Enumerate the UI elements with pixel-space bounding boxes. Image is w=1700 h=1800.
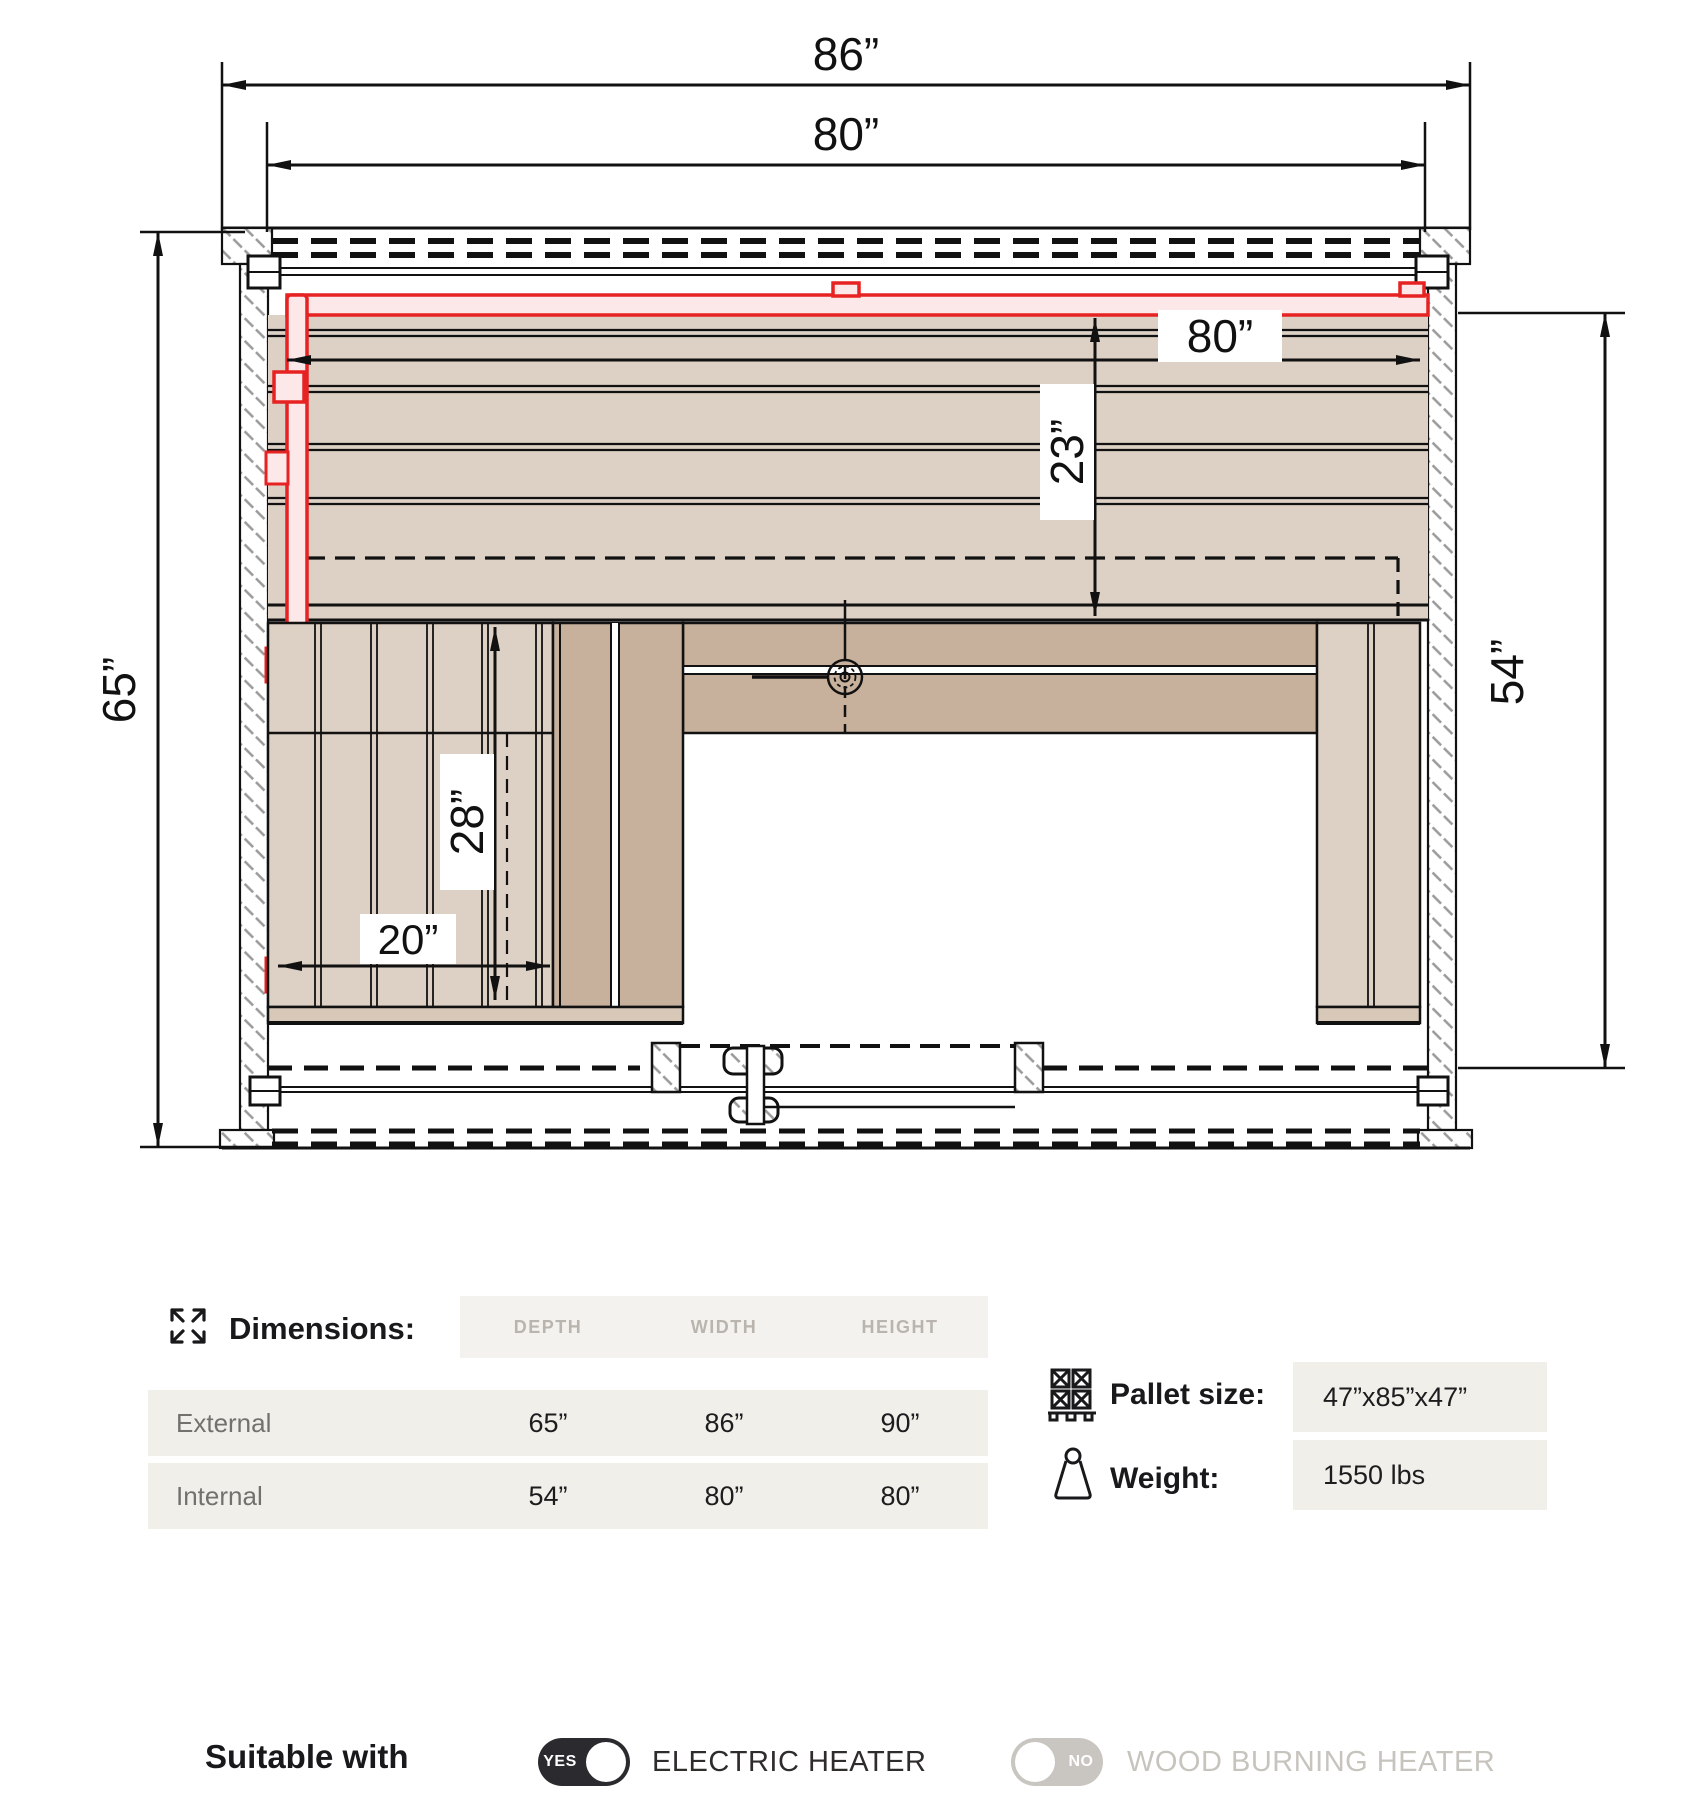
dimensions-title: Dimensions:: [229, 1311, 415, 1347]
external-height-value: 90”: [812, 1408, 988, 1439]
spec-row-internal: Internal 54” 80” 80”: [148, 1463, 988, 1529]
expand-arrows-icon: [165, 1303, 211, 1354]
col-width: WIDTH: [636, 1317, 812, 1338]
col-height: HEIGHT: [812, 1317, 988, 1338]
door-hinge-hardware: [724, 1046, 1015, 1124]
weight-label: Weight:: [1110, 1462, 1219, 1496]
internal-width-value: 80”: [636, 1481, 812, 1512]
internal-height-value: 80”: [812, 1481, 988, 1512]
wood-burning-heater-toggle[interactable]: NO: [1011, 1738, 1103, 1786]
dimension-internal-depth: 54”: [1458, 313, 1625, 1068]
dim-label-back-bench-depth: 23”: [1041, 419, 1093, 485]
dimensions-header: Dimensions:: [165, 1303, 415, 1354]
toggle-knob: [1015, 1742, 1055, 1782]
bottom-structure: [222, 1131, 1470, 1148]
col-depth: DEPTH: [460, 1317, 636, 1338]
dim-label-internal-width: 80”: [1187, 310, 1253, 362]
toggle-state-no: NO: [1059, 1753, 1103, 1771]
electric-heater-toggle[interactable]: YES: [538, 1738, 630, 1786]
toggle-state-yes: YES: [538, 1753, 582, 1771]
sauna-floor-plan-drawing: 86” 80” 65” 54” 80”: [0, 0, 1700, 1210]
dim-label-internal-depth: 54”: [1481, 639, 1533, 705]
dim-label-internal-width-top: 80”: [813, 108, 879, 160]
spec-row-external: External 65” 86” 90”: [148, 1390, 988, 1456]
row-label: External: [148, 1408, 460, 1439]
dim-label-external-depth: 65”: [93, 657, 145, 723]
pallet-icon: [1046, 1366, 1098, 1429]
wood-burning-heater-label: WOOD BURNING HEATER: [1127, 1746, 1495, 1779]
pallet-size-value: 47”x85”x47”: [1293, 1362, 1547, 1432]
electric-heater-label: ELECTRIC HEATER: [652, 1746, 926, 1779]
weight-icon: [1048, 1446, 1098, 1507]
spec-column-headers: DEPTH WIDTH HEIGHT: [460, 1296, 988, 1358]
external-width-value: 86”: [636, 1408, 812, 1439]
back-wall-structure: [222, 228, 1470, 264]
external-depth-value: 65”: [460, 1408, 636, 1439]
dim-label-side-bench-width: 20”: [378, 916, 439, 963]
dimension-internal-width-top: 80”: [267, 106, 1425, 232]
internal-depth-value: 54”: [460, 1481, 636, 1512]
front-wall-door: [250, 1043, 1448, 1124]
toggle-knob: [586, 1742, 626, 1782]
suitable-with-label: Suitable with: [205, 1738, 409, 1776]
dim-label-side-bench-length: 28”: [441, 789, 493, 855]
dim-label-external-width: 86”: [813, 28, 879, 80]
bench-leg-right: [1317, 623, 1420, 1023]
pallet-size-label: Pallet size:: [1110, 1378, 1292, 1412]
page: 86” 80” 65” 54” 80”: [0, 0, 1700, 1800]
row-label: Internal: [148, 1481, 460, 1512]
weight-value: 1550 lbs: [1293, 1440, 1547, 1510]
